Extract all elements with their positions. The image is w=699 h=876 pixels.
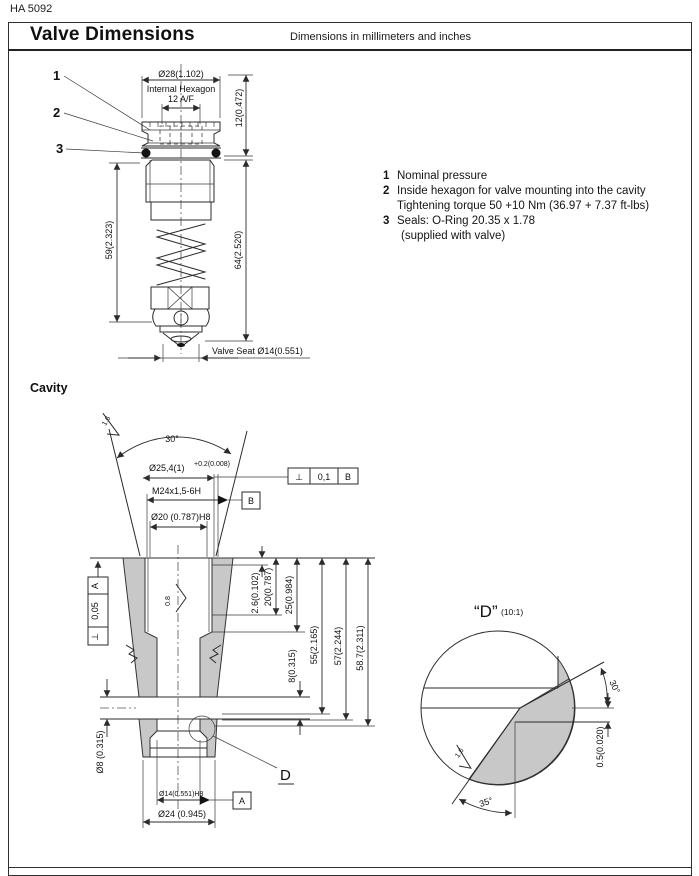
perpendicularity-icon: ⊥ bbox=[295, 472, 303, 482]
dim-d587: 58.7(2.311) bbox=[215, 558, 375, 726]
cavity-wall-left bbox=[123, 558, 157, 697]
detail-material-main bbox=[469, 679, 574, 784]
svg-text:30°: 30° bbox=[607, 678, 622, 695]
valve-seat-text: Valve Seat Ø14(0.551) bbox=[212, 346, 303, 356]
detail-d-drawing: “D” (10:1) 30° 0.5(0.020) 35° bbox=[415, 585, 699, 840]
datasheet-page: HA 5092 Valve Dimensions Dimensions in m… bbox=[0, 0, 699, 876]
detail-title: “D” bbox=[474, 602, 498, 621]
note-item: 3 Seals: O-Ring 20.35 x 1.78 (supplied w… bbox=[383, 214, 685, 244]
svg-text:1.6: 1.6 bbox=[101, 415, 112, 427]
perpendicularity-icon: ⊥ bbox=[90, 633, 100, 641]
note-item: 2 Inside hexagon for valve mounting into… bbox=[383, 184, 685, 214]
note-text: Inside hexagon for valve mounting into t… bbox=[397, 184, 685, 214]
svg-text:A: A bbox=[90, 583, 100, 589]
svg-text:2.6(0.102): 2.6(0.102) bbox=[250, 572, 260, 613]
dia24-text: Ø24 (0.945) bbox=[158, 809, 206, 819]
oring-left bbox=[142, 149, 151, 158]
svg-text:57(2.244): 57(2.244) bbox=[333, 627, 343, 666]
h59-text: 59(2.323) bbox=[104, 221, 114, 260]
note-text: Seals: O-Ring 20.35 x 1.78 (supplied wit… bbox=[397, 214, 685, 244]
svg-text:58.7(2.311): 58.7(2.311) bbox=[355, 625, 365, 670]
units-note: Dimensions in millimeters and inches bbox=[290, 31, 471, 43]
notes-list: 1 Nominal pressure 2 Inside hexagon for … bbox=[383, 169, 685, 244]
dim-dia14: Ø14(0.551)H8 A bbox=[157, 740, 251, 809]
note-number: 3 bbox=[383, 214, 397, 244]
oring-right bbox=[212, 149, 221, 158]
svg-text:55(2.165): 55(2.165) bbox=[309, 626, 319, 665]
detail-ref-label: D bbox=[280, 767, 291, 784]
callout-1: 1 bbox=[53, 68, 60, 83]
page-title: Valve Dimensions bbox=[30, 24, 195, 46]
deg30-text: 30° bbox=[165, 434, 179, 444]
datum-a-label: A bbox=[239, 796, 245, 806]
dim-detail-30deg: 30° bbox=[601, 668, 622, 704]
svg-text:0.8: 0.8 bbox=[165, 596, 172, 606]
valve-hex-nut bbox=[151, 287, 209, 309]
dia254-text: Ø25,4(1) bbox=[149, 463, 185, 473]
note-item: 1 Nominal pressure bbox=[383, 169, 685, 184]
dia8-text: Ø8 (0.315) bbox=[95, 730, 105, 773]
dia28-text: Ø28(1.102) bbox=[158, 69, 204, 79]
note-number: 2 bbox=[383, 184, 397, 214]
dim-h12: 12(0.472) bbox=[224, 75, 253, 156]
svg-text:20(0.787): 20(0.787) bbox=[263, 568, 273, 607]
feature-frame-perpendicularity-b: ⊥ 0,1 B bbox=[288, 468, 358, 484]
valve-drawing: 1 2 3 Ø28(1.102) Internal Hexagon 12 A/F bbox=[40, 58, 350, 378]
section-divider bbox=[8, 867, 692, 868]
dia254-tolerance: +0.2(0.008) bbox=[194, 461, 230, 468]
valve-cap bbox=[142, 122, 220, 146]
callout-2: 2 bbox=[53, 105, 60, 120]
svg-text:0,1: 0,1 bbox=[318, 472, 331, 482]
dia14-text: Ø14(0.551)H8 bbox=[159, 791, 203, 798]
m24-text: M24x1,5-6H bbox=[152, 486, 201, 496]
dia20-text: Ø20 (0.787)H8 bbox=[151, 512, 211, 522]
datum-b-label: B bbox=[248, 496, 254, 506]
svg-text:25(0.984): 25(0.984) bbox=[284, 576, 294, 615]
svg-text:8(0.315): 8(0.315) bbox=[287, 649, 297, 683]
note-text: Nominal pressure bbox=[397, 169, 685, 184]
h12-text: 12(0.472) bbox=[234, 89, 244, 128]
svg-text:B: B bbox=[345, 472, 351, 482]
dim-dia20: Ø20 (0.787)H8 bbox=[150, 512, 211, 557]
cavity-section-label: Cavity bbox=[30, 381, 68, 395]
valve-body bbox=[146, 160, 214, 220]
cone-left bbox=[109, 429, 140, 556]
dim-30deg: 30° bbox=[117, 434, 231, 458]
h64-text: 64(2.520) bbox=[233, 231, 243, 270]
note-number: 1 bbox=[383, 169, 397, 184]
dim-valve-seat: Valve Seat Ø14(0.551) bbox=[118, 344, 310, 362]
callout-3: 3 bbox=[56, 141, 63, 156]
title-bar: Valve Dimensions Dimensions in millimete… bbox=[8, 22, 692, 51]
roughness-16-icon: 1.6 bbox=[95, 413, 125, 439]
dim-dia254: Ø25,4(1) +0.2(0.008) bbox=[143, 461, 288, 478]
svg-text:35°: 35° bbox=[478, 795, 494, 809]
dim-detail-h05: 0.5(0.020) bbox=[572, 693, 614, 768]
document-code: HA 5092 bbox=[10, 3, 52, 15]
roughness-08-icon: 0.8 bbox=[165, 584, 186, 612]
dim-d8: 8(0.315) bbox=[287, 649, 300, 735]
svg-text:0,05: 0,05 bbox=[90, 602, 100, 620]
dim-dia8: Ø8 (0.315) bbox=[95, 679, 107, 774]
svg-text:0.5(0.020): 0.5(0.020) bbox=[595, 726, 605, 767]
dim-h59: 59(2.323) bbox=[104, 163, 152, 322]
detail-scale: (10:1) bbox=[501, 607, 523, 617]
detail-roughness-16-icon: 1.6 bbox=[448, 745, 478, 772]
hex-label-2: 12 A/F bbox=[168, 94, 195, 104]
cavity-wall-left-lower bbox=[139, 719, 157, 757]
cavity-wall-right bbox=[200, 558, 233, 697]
dim-detail-35deg: 35° bbox=[459, 795, 512, 813]
hex-label-1: Internal Hexagon bbox=[147, 84, 216, 94]
feature-frame-perpendicularity-a: A 0,05 ⊥ bbox=[88, 561, 108, 645]
valve-callouts: 1 2 3 bbox=[53, 68, 153, 156]
dim-h64: 64(2.520) bbox=[205, 160, 253, 341]
cavity-drawing: 1.6 30° Ø25,4(1) +0.2(0.008) ⊥ 0,1 B bbox=[55, 400, 420, 865]
